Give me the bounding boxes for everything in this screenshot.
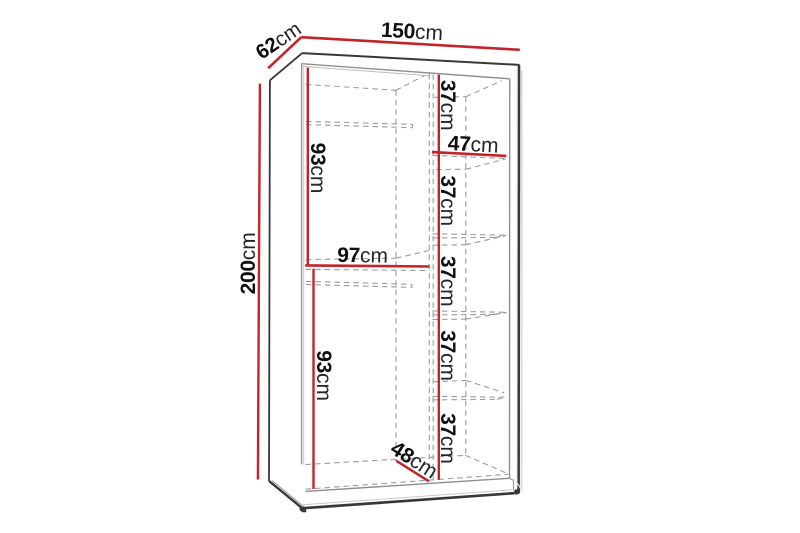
svg-text:150cm: 150cm — [380, 18, 443, 45]
svg-text:47cm: 47cm — [447, 131, 499, 157]
svg-text:37cm: 37cm — [437, 256, 460, 307]
svg-text:93cm: 93cm — [312, 350, 335, 401]
svg-text:37cm: 37cm — [437, 175, 460, 226]
svg-text:37cm: 37cm — [437, 413, 460, 464]
svg-text:97cm: 97cm — [337, 243, 388, 267]
svg-text:93cm: 93cm — [306, 143, 329, 194]
svg-text:200cm: 200cm — [236, 232, 259, 294]
svg-text:37cm: 37cm — [437, 330, 460, 381]
svg-text:37cm: 37cm — [437, 80, 460, 131]
